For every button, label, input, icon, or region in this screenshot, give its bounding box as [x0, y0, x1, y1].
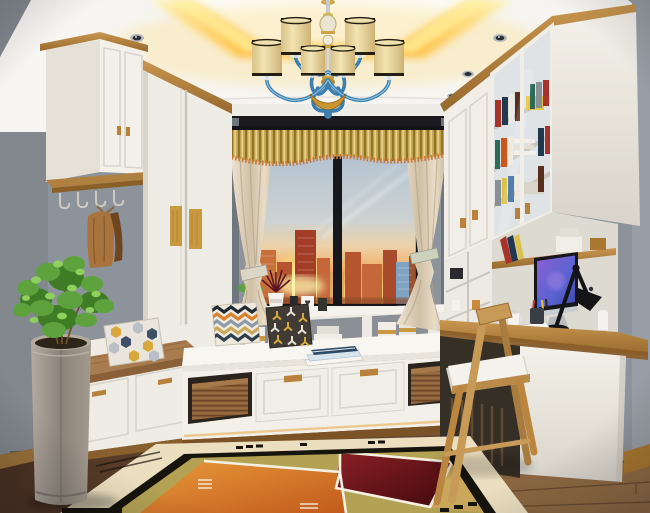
scene-root [0, 0, 650, 513]
vignette [0, 0, 650, 513]
room-photo [0, 0, 650, 513]
